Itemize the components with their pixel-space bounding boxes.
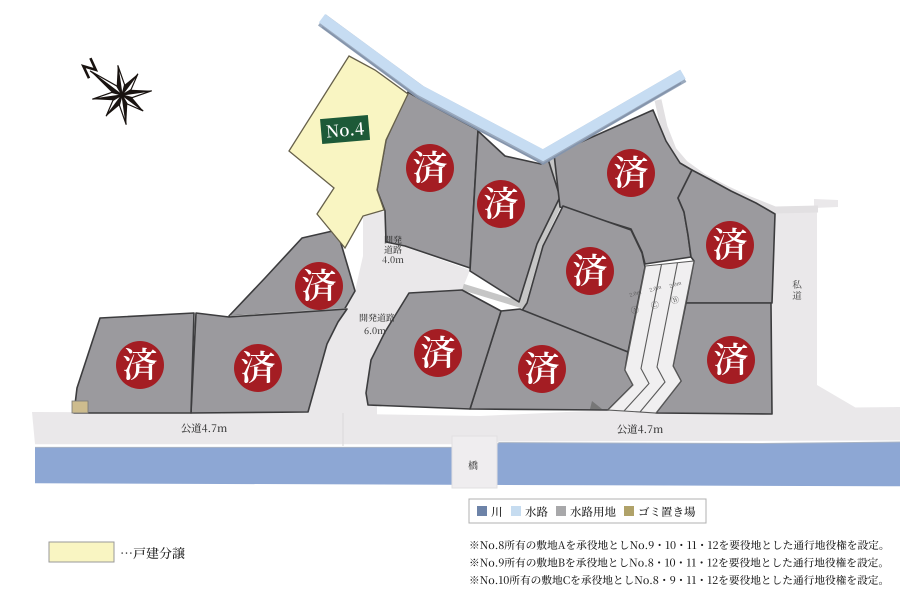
svg-text:No.4: No.4 <box>325 115 366 142</box>
svg-text:※No.9所有の敷地Bを承役地としNo.8・10・11・12: ※No.9所有の敷地Bを承役地としNo.8・10・11・12を要役地とした通行地… <box>469 556 889 571</box>
svg-text:4.0m: 4.0m <box>382 253 404 266</box>
svg-text:※No.10所有の敷地Cを承役地としNo.8・9・11・12: ※No.10所有の敷地Cを承役地としNo.8・9・11・12を要役地とした通行地… <box>469 573 889 588</box>
svg-text:済: 済 <box>712 218 747 268</box>
svg-text:済: 済 <box>412 141 447 191</box>
svg-text:※No.8所有の敷地Aを承役地としNo.9・10・11・12: ※No.8所有の敷地Aを承役地としNo.9・10・11・12を要役地とした通行地… <box>469 538 890 553</box>
svg-text:公道4.7m: 公道4.7m <box>617 422 664 437</box>
svg-text:ゴミ置き場: ゴミ置き場 <box>638 504 696 520</box>
svg-text:済: 済 <box>524 342 559 392</box>
svg-text:水路: 水路 <box>525 504 548 520</box>
svg-text:…戸建分譲: …戸建分譲 <box>120 543 185 562</box>
svg-text:済: 済 <box>483 177 518 227</box>
svg-text:公道4.7m: 公道4.7m <box>181 421 228 436</box>
svg-text:済: 済 <box>613 146 648 196</box>
svg-text:6.0m: 6.0m <box>364 324 386 337</box>
svg-text:済: 済 <box>122 338 157 388</box>
svg-text:済: 済 <box>713 333 748 383</box>
svg-text:済: 済 <box>301 259 336 309</box>
svg-text:済: 済 <box>240 341 275 391</box>
svg-text:水路用地: 水路用地 <box>570 504 616 520</box>
svg-text:道: 道 <box>792 288 802 302</box>
svg-text:橋: 橋 <box>468 457 478 472</box>
svg-text:済: 済 <box>572 244 607 294</box>
svg-text:済: 済 <box>420 326 455 376</box>
svg-text:開発道路: 開発道路 <box>359 311 395 324</box>
svg-text:川: 川 <box>491 504 503 520</box>
